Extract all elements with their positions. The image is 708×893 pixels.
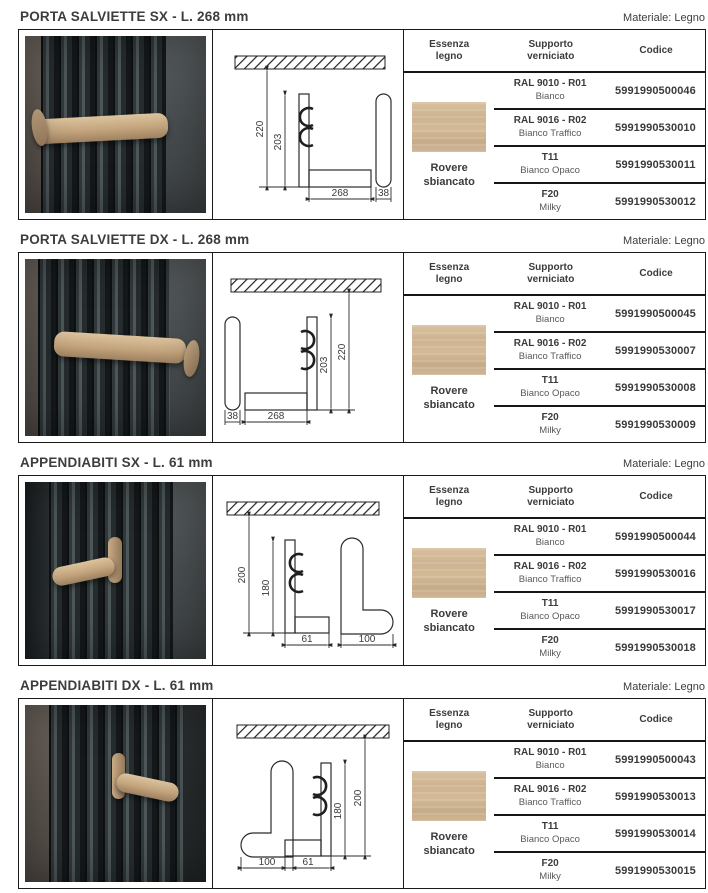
wall-hatch bbox=[227, 502, 379, 515]
essenza-cell: Rovere sbiancato bbox=[404, 742, 494, 888]
finish-name: F20 bbox=[494, 635, 606, 647]
hook-foot-front-view bbox=[285, 840, 321, 856]
product-photo bbox=[25, 705, 206, 882]
codice-value: 5991990500043 bbox=[606, 754, 705, 766]
technical-drawing: 220 203 268 38 bbox=[213, 30, 403, 219]
table-row: RAL 9016 - R02Bianco Traffico 5991990530… bbox=[494, 331, 705, 368]
wall-strip bbox=[25, 705, 49, 882]
dimension-label: 200 bbox=[353, 789, 364, 806]
material-label: Materiale: Legno bbox=[623, 235, 705, 247]
header-essenza: Essenza legno bbox=[423, 485, 475, 509]
header-codice: Codice bbox=[639, 268, 672, 280]
bar-end-cap bbox=[182, 340, 202, 379]
dimension-label: 38 bbox=[227, 411, 239, 422]
product-photo bbox=[25, 36, 206, 213]
dimension-label: 268 bbox=[268, 411, 285, 422]
table-row: F20Milky 5991990530015 bbox=[494, 851, 705, 888]
finish-name: RAL 9010 - R01 bbox=[494, 301, 606, 313]
codice-value: 5991990530008 bbox=[606, 382, 705, 394]
side-panel bbox=[166, 36, 206, 213]
technical-drawing: 100 61 180 200 bbox=[213, 699, 403, 888]
finish-name: F20 bbox=[494, 412, 606, 424]
side-panel bbox=[170, 259, 206, 436]
finish-sub: Bianco bbox=[494, 314, 606, 325]
technical-drawing-cell: 100 61 180 200 bbox=[213, 699, 404, 888]
hook-arm bbox=[51, 555, 117, 587]
towel-bar bbox=[35, 112, 168, 144]
finish-name: RAL 9016 - R02 bbox=[494, 115, 606, 127]
essenza-cell: Rovere sbiancato bbox=[404, 73, 494, 219]
finish-sub: Bianco Opaco bbox=[494, 165, 606, 176]
radiator-clips bbox=[313, 777, 326, 815]
bar-end-cap bbox=[30, 108, 50, 147]
header-essenza: Essenza legno bbox=[423, 708, 475, 732]
wood-swatch bbox=[412, 325, 486, 375]
section-porta-salviette-sx: PORTA SALVIETTE SX - L. 268 mm Materiale… bbox=[0, 9, 708, 220]
table-header: Essenza legno Supporto verniciato Codice bbox=[404, 699, 705, 742]
towel-bar bbox=[53, 331, 186, 364]
table-row: T11Bianco Opaco 5991990530008 bbox=[494, 368, 705, 405]
essenza-cell: Rovere sbiancato bbox=[404, 519, 494, 665]
table-row: RAL 9010 - R01Bianco 5991990500046 bbox=[494, 73, 705, 108]
side-panel bbox=[173, 482, 206, 659]
codice-value: 5991990530010 bbox=[606, 122, 705, 134]
parts-table: Essenza legno Supporto verniciato Codice… bbox=[404, 699, 705, 888]
header-supporto: Supporto verniciato bbox=[520, 262, 582, 286]
table-row: RAL 9010 - R01Bianco 5991990500044 bbox=[494, 519, 705, 554]
wall-hatch bbox=[235, 56, 385, 69]
dimension-label: 200 bbox=[237, 566, 248, 583]
essenza-label: Rovere sbiancato bbox=[417, 385, 481, 413]
codice-value: 5991990530016 bbox=[606, 568, 705, 580]
dimension-label: 100 bbox=[259, 857, 276, 868]
codice-value: 5991990530009 bbox=[606, 419, 705, 431]
finish-sub: Bianco Traffico bbox=[494, 351, 606, 362]
essenza-label: Rovere sbiancato bbox=[417, 608, 481, 636]
finish-name: T11 bbox=[494, 598, 606, 610]
finish-name: RAL 9016 - R02 bbox=[494, 561, 606, 573]
header-supporto: Supporto verniciato bbox=[520, 708, 582, 732]
parts-table: Essenza legno Supporto verniciato Codice… bbox=[404, 476, 705, 665]
material-label: Materiale: Legno bbox=[623, 681, 705, 693]
dimension-label: 220 bbox=[337, 343, 348, 360]
product-photo bbox=[25, 482, 206, 659]
hook-foot-front-view bbox=[295, 617, 329, 633]
codice-value: 5991990530011 bbox=[606, 159, 705, 171]
table-row: RAL 9010 - R01Bianco 5991990500043 bbox=[494, 742, 705, 777]
finish-name: F20 bbox=[494, 858, 606, 870]
bar-front-view bbox=[309, 170, 371, 187]
codice-value: 5991990530012 bbox=[606, 196, 705, 208]
dimension-label: 268 bbox=[332, 188, 349, 199]
codice-value: 5991990530017 bbox=[606, 605, 705, 617]
table-row: RAL 9016 - R02Bianco Traffico 5991990530… bbox=[494, 108, 705, 145]
finish-sub: Bianco Traffico bbox=[494, 797, 606, 808]
dimension-label: 61 bbox=[301, 634, 313, 645]
technical-drawing-cell: 200 180 61 100 bbox=[213, 476, 404, 665]
header-codice: Codice bbox=[639, 45, 672, 57]
dimension-label: 180 bbox=[333, 802, 344, 819]
codice-value: 5991990500044 bbox=[606, 531, 705, 543]
dimension-label: 38 bbox=[378, 188, 390, 199]
table-row: T11Bianco Opaco 5991990530017 bbox=[494, 591, 705, 628]
table-row: RAL 9016 - R02Bianco Traffico 5991990530… bbox=[494, 554, 705, 591]
finish-name: RAL 9016 - R02 bbox=[494, 784, 606, 796]
header-codice: Codice bbox=[639, 714, 672, 726]
codice-value: 5991990530013 bbox=[606, 791, 705, 803]
dark-column bbox=[25, 482, 49, 659]
section-frame: 200 180 61 100 bbox=[18, 475, 706, 666]
finish-name: T11 bbox=[494, 375, 606, 387]
section-title: APPENDIABITI DX - L. 61 mm bbox=[20, 678, 213, 693]
table-row: T11Bianco Opaco 5991990530011 bbox=[494, 145, 705, 182]
finish-sub: Milky bbox=[494, 648, 606, 659]
product-photo-cell bbox=[19, 253, 213, 442]
technical-drawing: 200 180 61 100 bbox=[213, 476, 403, 665]
hook-back-plate bbox=[112, 753, 126, 799]
wall-hatch bbox=[237, 725, 389, 738]
section-frame: 38 268 203 220 bbox=[18, 252, 706, 443]
dimension-label: 203 bbox=[319, 356, 330, 373]
table-row: F20Milky 5991990530012 bbox=[494, 182, 705, 219]
table-header: Essenza legno Supporto verniciato Codice bbox=[404, 476, 705, 519]
dimension-label: 203 bbox=[273, 133, 284, 150]
essenza-label: Rovere sbiancato bbox=[417, 162, 481, 190]
dimension-label: 220 bbox=[255, 120, 266, 137]
codice-value: 5991990530018 bbox=[606, 642, 705, 654]
header-codice: Codice bbox=[639, 491, 672, 503]
product-photo-cell bbox=[19, 476, 213, 665]
finish-name: T11 bbox=[494, 821, 606, 833]
parts-table: Essenza legno Supporto verniciato Codice… bbox=[404, 30, 705, 219]
table-row: F20Milky 5991990530018 bbox=[494, 628, 705, 665]
codice-value: 5991990530015 bbox=[606, 865, 705, 877]
codice-value: 5991990500045 bbox=[606, 308, 705, 320]
header-supporto: Supporto verniciato bbox=[520, 39, 582, 63]
technical-drawing-cell: 220 203 268 38 bbox=[213, 30, 404, 219]
finish-name: T11 bbox=[494, 152, 606, 164]
catalog-page: PORTA SALVIETTE SX - L. 268 mm Materiale… bbox=[0, 0, 708, 893]
finish-sub: Milky bbox=[494, 871, 606, 882]
header-essenza: Essenza legno bbox=[423, 39, 475, 63]
dimension-label: 61 bbox=[302, 857, 314, 868]
finish-name: RAL 9010 - R01 bbox=[494, 524, 606, 536]
table-row: RAL 9016 - R02Bianco Traffico 5991990530… bbox=[494, 777, 705, 814]
section-title: PORTA SALVIETTE SX - L. 268 mm bbox=[20, 9, 249, 24]
finish-name: RAL 9010 - R01 bbox=[494, 747, 606, 759]
hook-side-view bbox=[341, 538, 393, 634]
codice-value: 5991990530014 bbox=[606, 828, 705, 840]
header-essenza: Essenza legno bbox=[423, 262, 475, 286]
dimension-label: 180 bbox=[261, 579, 272, 596]
finish-sub: Bianco bbox=[494, 537, 606, 548]
codice-value: 5991990530007 bbox=[606, 345, 705, 357]
section-header: APPENDIABITI SX - L. 61 mm Materiale: Le… bbox=[20, 455, 705, 470]
section-header: PORTA SALVIETTE SX - L. 268 mm Materiale… bbox=[20, 9, 705, 24]
finish-sub: Bianco Opaco bbox=[494, 611, 606, 622]
finish-sub: Bianco Traffico bbox=[494, 574, 606, 585]
side-panel bbox=[184, 705, 206, 882]
bar-front-view bbox=[245, 393, 307, 410]
product-photo-cell bbox=[19, 30, 213, 219]
wood-swatch bbox=[412, 102, 486, 152]
wall-hatch bbox=[231, 279, 381, 292]
codice-value: 5991990500046 bbox=[606, 85, 705, 97]
product-photo-cell bbox=[19, 699, 213, 888]
table-header: Essenza legno Supporto verniciato Codice bbox=[404, 30, 705, 73]
parts-table: Essenza legno Supporto verniciato Codice… bbox=[404, 253, 705, 442]
section-header: APPENDIABITI DX - L. 61 mm Materiale: Le… bbox=[20, 678, 705, 693]
dimension-label: 100 bbox=[359, 634, 376, 645]
section-title: PORTA SALVIETTE DX - L. 268 mm bbox=[20, 232, 249, 247]
finish-name: RAL 9016 - R02 bbox=[494, 338, 606, 350]
section-porta-salviette-dx: PORTA SALVIETTE DX - L. 268 mm Materiale… bbox=[0, 232, 708, 443]
product-photo bbox=[25, 259, 206, 436]
table-row: T11Bianco Opaco 5991990530014 bbox=[494, 814, 705, 851]
finish-name: RAL 9010 - R01 bbox=[494, 78, 606, 90]
radiator-tubes bbox=[41, 36, 166, 213]
table-row: RAL 9010 - R01Bianco 5991990500045 bbox=[494, 296, 705, 331]
finish-sub: Bianco bbox=[494, 91, 606, 102]
technical-drawing: 38 268 203 220 bbox=[213, 253, 403, 442]
wood-swatch bbox=[412, 548, 486, 598]
radiator-tubes bbox=[49, 482, 174, 659]
radiator-clips bbox=[290, 554, 303, 592]
essenza-cell: Rovere sbiancato bbox=[404, 296, 494, 442]
section-frame: 100 61 180 200 bbox=[18, 698, 706, 889]
wall-strip bbox=[25, 259, 38, 436]
hook-arm bbox=[114, 771, 180, 803]
section-header: PORTA SALVIETTE DX - L. 268 mm Materiale… bbox=[20, 232, 705, 247]
essenza-label: Rovere sbiancato bbox=[417, 831, 481, 859]
hook-back-plate bbox=[108, 537, 122, 583]
bar-side-view bbox=[225, 317, 240, 410]
finish-sub: Milky bbox=[494, 425, 606, 436]
finish-sub: Milky bbox=[494, 202, 606, 213]
radiator-tubes bbox=[38, 259, 170, 436]
finish-sub: Bianco Opaco bbox=[494, 388, 606, 399]
section-appendiabiti-dx: APPENDIABITI DX - L. 61 mm Materiale: Le… bbox=[0, 678, 708, 889]
material-label: Materiale: Legno bbox=[623, 12, 705, 24]
finish-sub: Bianco Opaco bbox=[494, 834, 606, 845]
wood-swatch bbox=[412, 771, 486, 821]
bar-side-view bbox=[376, 94, 391, 187]
section-frame: 220 203 268 38 bbox=[18, 29, 706, 220]
radiator-tubes bbox=[49, 705, 185, 882]
table-row: F20Milky 5991990530009 bbox=[494, 405, 705, 442]
header-supporto: Supporto verniciato bbox=[520, 485, 582, 509]
finish-sub: Bianco bbox=[494, 760, 606, 771]
material-label: Materiale: Legno bbox=[623, 458, 705, 470]
section-appendiabiti-sx: APPENDIABITI SX - L. 61 mm Materiale: Le… bbox=[0, 455, 708, 666]
wall-strip bbox=[25, 36, 41, 213]
section-title: APPENDIABITI SX - L. 61 mm bbox=[20, 455, 213, 470]
finish-name: F20 bbox=[494, 189, 606, 201]
table-header: Essenza legno Supporto verniciato Codice bbox=[404, 253, 705, 296]
finish-sub: Bianco Traffico bbox=[494, 128, 606, 139]
technical-drawing-cell: 38 268 203 220 bbox=[213, 253, 404, 442]
radiator-clips bbox=[300, 108, 313, 146]
